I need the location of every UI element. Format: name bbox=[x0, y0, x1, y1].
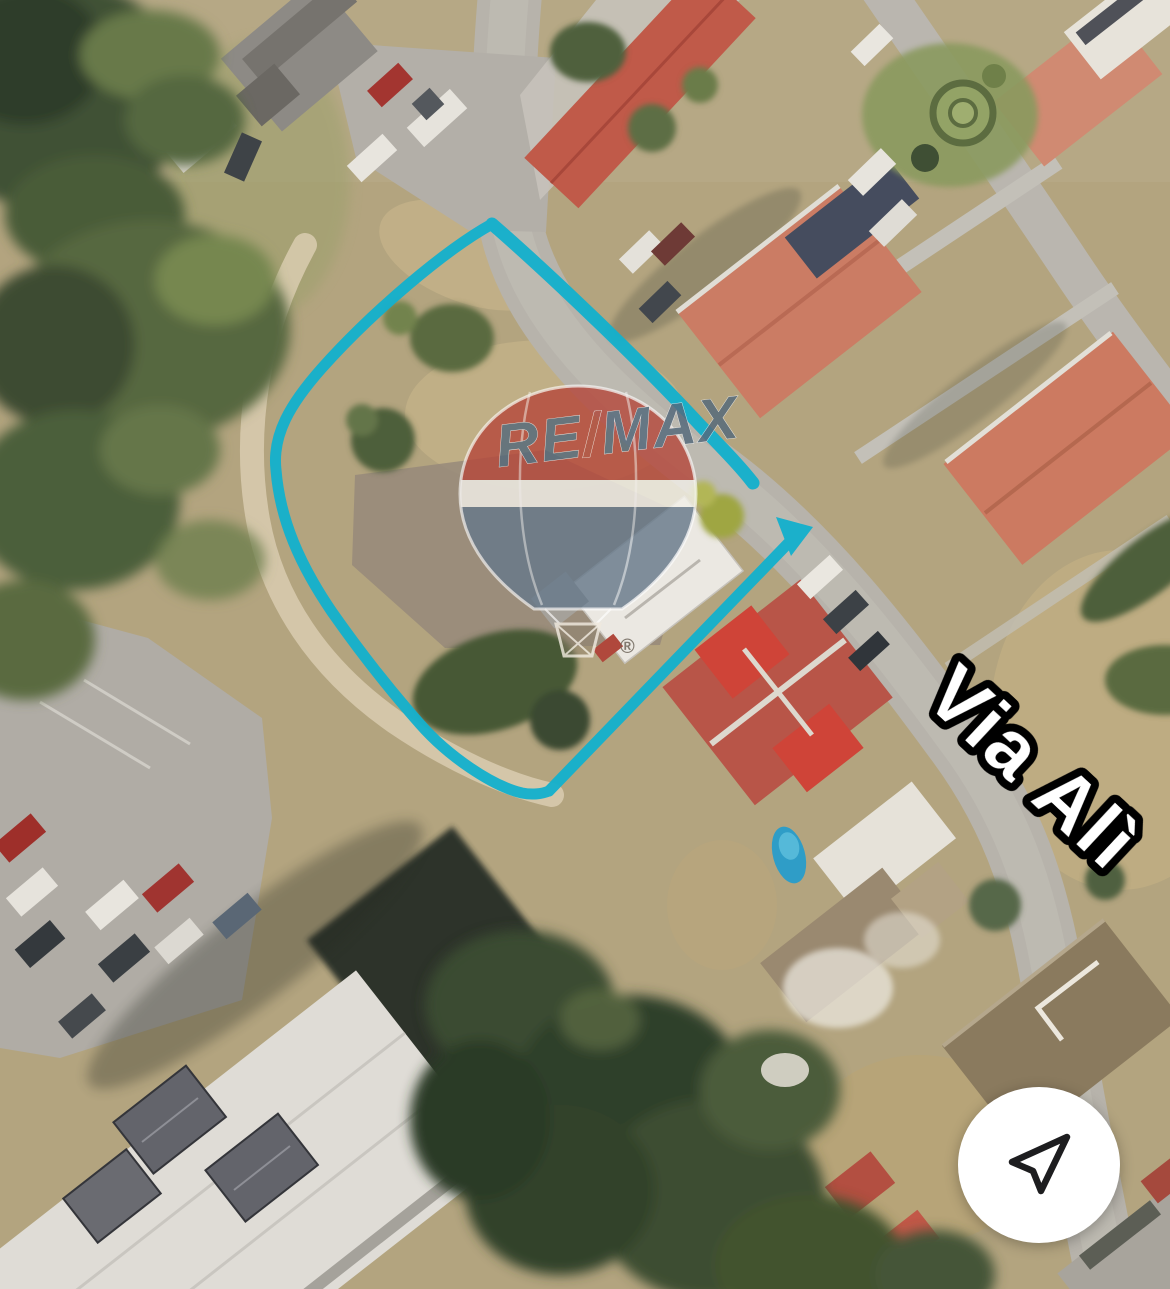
navigation-button[interactable] bbox=[958, 1087, 1120, 1243]
registered-trademark-symbol: ® bbox=[620, 636, 635, 658]
satellite-imagery: ® RE/MAX Via Alì bbox=[0, 0, 1170, 1289]
satellite-map-view[interactable]: ® RE/MAX Via Alì bbox=[0, 0, 1170, 1289]
navigation-arrow-icon bbox=[993, 1119, 1085, 1211]
brand-text-re: RE bbox=[492, 403, 587, 480]
balloon-basket bbox=[556, 624, 600, 656]
